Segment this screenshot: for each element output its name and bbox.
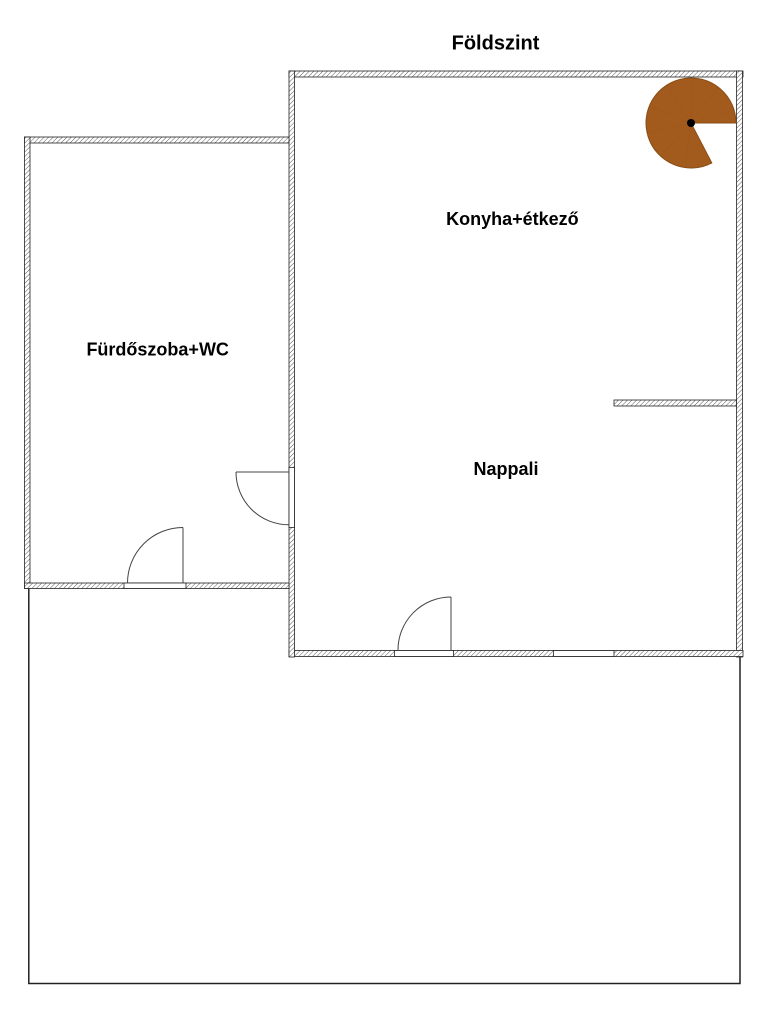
svg-text:Nappali: Nappali [473, 459, 538, 479]
svg-text:Fürdőszoba+WC: Fürdőszoba+WC [86, 340, 229, 360]
svg-text:Földszint: Földszint [452, 33, 540, 55]
svg-text:Konyha+étkező: Konyha+étkező [446, 209, 579, 229]
